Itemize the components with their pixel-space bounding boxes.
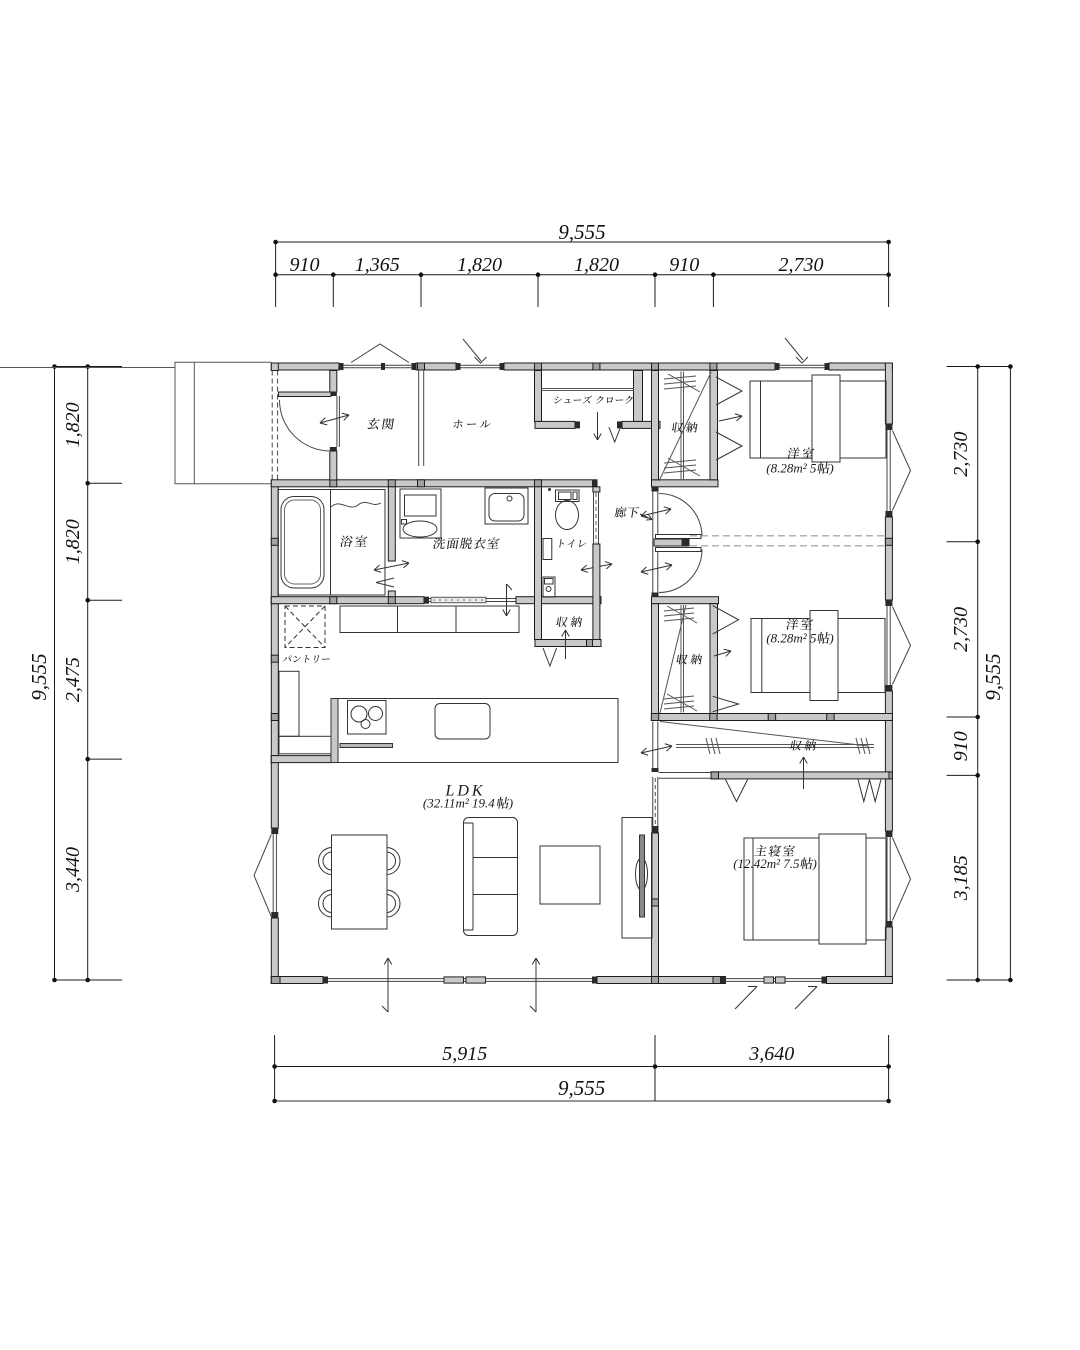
- svg-text:3,440: 3,440: [62, 847, 84, 893]
- svg-text:): ): [812, 856, 817, 871]
- svg-text:(12.42m² 7.5: (12.42m² 7.5: [733, 856, 800, 871]
- svg-text:2,730: 2,730: [950, 607, 972, 652]
- svg-text:1,820: 1,820: [62, 402, 84, 447]
- svg-text:): ): [828, 631, 833, 646]
- svg-text:2,730: 2,730: [950, 432, 972, 477]
- svg-text:(32.11m² 19.4: (32.11m² 19.4: [423, 796, 495, 811]
- svg-text:910: 910: [290, 254, 320, 276]
- svg-text:(8.28m² 5: (8.28m² 5: [766, 631, 817, 646]
- svg-text:1,365: 1,365: [355, 254, 400, 276]
- svg-text:9,555: 9,555: [981, 653, 1005, 700]
- svg-text:2,730: 2,730: [779, 254, 824, 276]
- svg-text:): ): [828, 461, 833, 476]
- svg-text:9,555: 9,555: [27, 653, 51, 700]
- svg-text:1,820: 1,820: [574, 254, 619, 276]
- svg-text:910: 910: [669, 254, 699, 276]
- svg-text:2,475: 2,475: [62, 657, 84, 702]
- svg-text:5,915: 5,915: [442, 1043, 487, 1065]
- svg-text:(8.28m² 5: (8.28m² 5: [766, 461, 817, 476]
- svg-text:1,820: 1,820: [457, 254, 502, 276]
- svg-text:9,555: 9,555: [558, 1076, 605, 1100]
- svg-text:1,820: 1,820: [62, 519, 84, 564]
- svg-text:3,185: 3,185: [950, 855, 972, 901]
- svg-text:): ): [508, 796, 513, 811]
- svg-text:3,640: 3,640: [748, 1043, 794, 1065]
- svg-text:9,555: 9,555: [558, 220, 605, 244]
- svg-text:910: 910: [950, 731, 972, 761]
